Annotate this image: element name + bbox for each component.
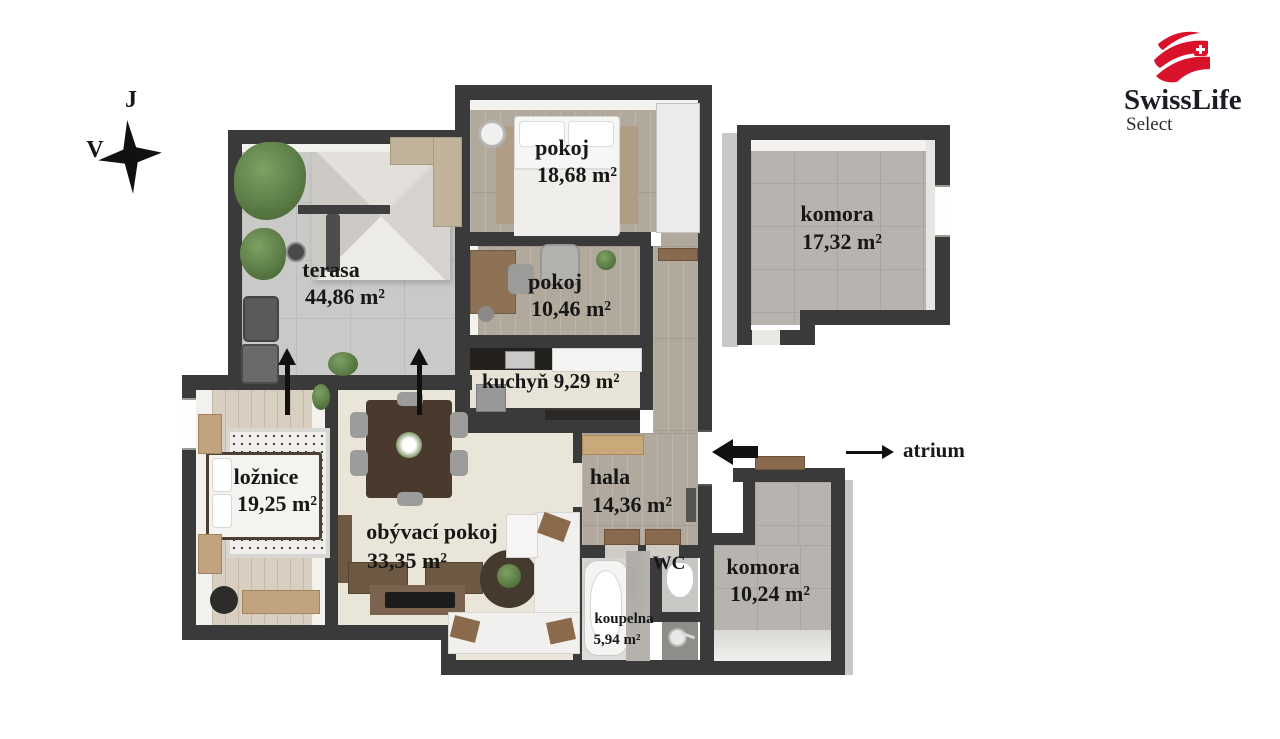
komora2-floor-upper bbox=[755, 482, 831, 552]
pokoj1-name-label: pokoj bbox=[535, 137, 589, 159]
terasa-side-table bbox=[241, 344, 279, 384]
komora1-wall-face-right bbox=[926, 140, 935, 312]
hala-doormat bbox=[604, 529, 640, 545]
shower-head-icon bbox=[668, 628, 687, 647]
wall bbox=[737, 125, 751, 345]
terasa-small-plant bbox=[328, 352, 358, 376]
terasa-plant bbox=[240, 228, 286, 280]
obyvaci-hala-door-gap bbox=[573, 463, 582, 507]
loznice-pillow bbox=[212, 458, 232, 492]
kuchyn-name-label: kuchyň bbox=[482, 369, 549, 393]
komora1-wall-face-top bbox=[751, 140, 935, 151]
wall bbox=[737, 125, 950, 140]
hala-name-label: hala bbox=[590, 466, 630, 488]
loznice-bench bbox=[242, 590, 320, 614]
koupelna-name-label: koupelna bbox=[594, 612, 653, 627]
komora2-doormat bbox=[755, 456, 805, 470]
terasa-area-label: 44,86 m² bbox=[305, 286, 385, 308]
swisslife-logo-icon bbox=[1150, 28, 1216, 86]
sofa-chaise bbox=[506, 514, 538, 558]
compass-star-icon bbox=[94, 115, 166, 197]
pokoj1-area-label: 18,68 m² bbox=[537, 164, 617, 186]
corridor-pokoj1-door-gap bbox=[661, 232, 698, 246]
corridor-doormat bbox=[658, 248, 698, 261]
entrance-arrow-icon bbox=[712, 439, 733, 465]
komora2-side-face bbox=[845, 480, 853, 675]
floorplan-canvas: J V SwissLife Select bbox=[0, 0, 1280, 739]
hala-bench bbox=[582, 435, 644, 455]
wall bbox=[831, 468, 845, 675]
loznice-plant bbox=[312, 384, 330, 410]
pokoj2-area-label: 10,46 m² bbox=[531, 298, 611, 320]
loznice-dresser bbox=[198, 414, 222, 454]
terasa-door-arrow-stem bbox=[417, 363, 422, 415]
hala-area-label: 14,36 m² bbox=[592, 494, 672, 516]
komora1-door-opening bbox=[752, 330, 780, 345]
kuchyn-label: kuchyň 9,29 m² bbox=[482, 371, 620, 392]
wall bbox=[800, 310, 815, 345]
dining-chair bbox=[450, 412, 468, 438]
loznice-window bbox=[182, 398, 196, 450]
wall bbox=[700, 533, 714, 675]
dining-chair bbox=[350, 450, 368, 476]
wall bbox=[455, 335, 640, 348]
obyvaci-name-label: obývací pokoj bbox=[366, 521, 497, 543]
terasa-sofa bbox=[433, 137, 462, 227]
entrance-arrow-stem bbox=[733, 446, 758, 458]
wall bbox=[455, 85, 712, 100]
dining-chair bbox=[350, 412, 368, 438]
pokoj2-name-label: pokoj bbox=[528, 271, 582, 293]
obyvaci-area-label: 33,35 m² bbox=[367, 550, 447, 572]
loznice-dresser bbox=[198, 534, 222, 574]
entrance-door-gap bbox=[698, 430, 712, 486]
komora1-window bbox=[935, 185, 950, 237]
wc-label: WC bbox=[653, 554, 686, 573]
coffee-table-plant bbox=[497, 564, 521, 588]
hala-doormat bbox=[645, 529, 681, 545]
loznice-pillow bbox=[212, 494, 232, 528]
wall bbox=[640, 246, 653, 410]
komora2-wall-face-bottom bbox=[714, 630, 831, 661]
table-centerpiece bbox=[396, 432, 422, 458]
terasa-chair bbox=[243, 296, 279, 342]
terasa-table-bar bbox=[298, 205, 390, 214]
komora1-name-label: komora bbox=[800, 203, 873, 225]
loznice-area-label: 19,25 m² bbox=[237, 493, 317, 515]
atrium-arrow-icon bbox=[882, 445, 894, 459]
corridor-floor bbox=[653, 246, 698, 433]
wall bbox=[712, 533, 755, 545]
logo-sub-text: Select bbox=[1126, 115, 1172, 134]
kitchen-sink bbox=[505, 351, 535, 369]
pokoj2-floor-lamp bbox=[478, 306, 494, 322]
atrium-label: atrium bbox=[903, 440, 965, 461]
wall bbox=[700, 661, 845, 675]
dining-chair bbox=[397, 492, 423, 506]
terasa-name-label: terasa bbox=[302, 259, 359, 281]
atrium-arrow-stem bbox=[846, 451, 882, 454]
kitchen-bar-counter bbox=[545, 410, 640, 420]
dining-chair bbox=[450, 450, 468, 476]
wall bbox=[815, 310, 950, 325]
wall bbox=[182, 625, 456, 640]
komora2-area-label: 10,24 m² bbox=[730, 583, 810, 605]
logo-brand-text: SwissLife bbox=[1124, 86, 1242, 115]
compass-south-label: J bbox=[125, 88, 137, 112]
komora2-name-label: komora bbox=[726, 556, 799, 578]
loznice-chair bbox=[210, 586, 238, 614]
pokoj2-plant bbox=[596, 250, 616, 270]
hala-wall-panel bbox=[686, 488, 696, 522]
kuchyn-area-label: 9,29 m² bbox=[554, 369, 620, 393]
pokoj1-wardrobe bbox=[656, 103, 700, 233]
loznice-name-label: ložnice bbox=[234, 466, 299, 488]
komora1-side-face bbox=[722, 133, 738, 347]
pokoj1-lamp bbox=[478, 120, 506, 148]
koupelna-area-label: 5,94 m² bbox=[594, 633, 641, 648]
komora1-area-label: 17,32 m² bbox=[802, 231, 882, 253]
tv-screen bbox=[385, 592, 455, 608]
terasa-door-arrow-stem bbox=[285, 363, 290, 415]
wall bbox=[441, 660, 712, 675]
